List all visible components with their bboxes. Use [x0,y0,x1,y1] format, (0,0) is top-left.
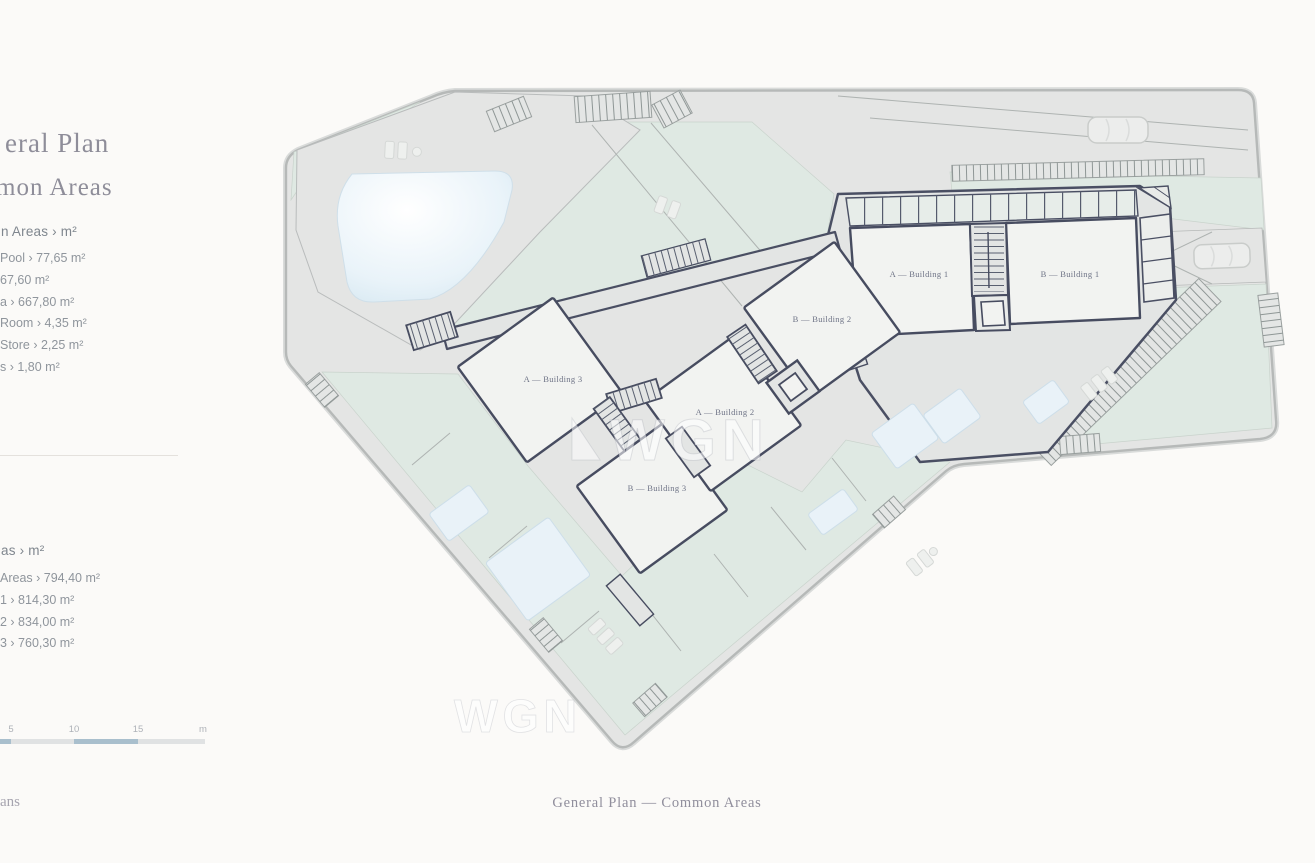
plot-areas-list: Areas › 794,40 m² 1 › 814,30 m² 2 › 834,… [0,568,100,655]
car-icon [1088,117,1148,143]
building-a3-label: A — Building 3 [524,374,583,384]
panel-subtitle-fragment: mon Areas [0,174,113,202]
panel-title-fragment: eral Plan [5,128,109,159]
building-b3-label: B — Building 3 [628,483,687,493]
panel-divider [0,455,178,456]
scale-tick: 10 [69,724,80,735]
building-b2-label: B — Building 2 [793,314,852,324]
common-areas-header: n Areas › m² [1,224,77,239]
list-item: 67,60 m² [0,270,87,292]
list-item: Store › 2,25 m² [0,335,87,357]
scale-bar: 5 10 15 m [0,724,210,748]
scale-bar-segments [0,739,205,744]
list-item: a › 667,80 m² [0,292,87,314]
list-item: s › 1,80 m² [0,357,87,379]
lounger-icon [906,543,942,577]
scale-tick: 15 [133,724,144,735]
info-panel: eral Plan mon Areas n Areas › m² Pool › … [0,0,236,863]
list-item: 1 › 814,30 m² [0,590,100,612]
building-a1-label: A — Building 1 [890,269,949,279]
list-item: 2 › 834,00 m² [0,612,100,634]
side-compartments [1140,214,1174,302]
watermark-text: WGN [454,690,582,742]
list-item: 3 › 760,30 m² [0,633,100,655]
list-item: Areas › 794,40 m² [0,568,100,590]
list-item: Pool › 77,65 m² [0,248,87,270]
common-areas-list: Pool › 77,65 m² 67,60 m² a › 667,80 m² R… [0,248,87,379]
stair-core [970,223,1010,331]
scale-tick: m [199,724,207,735]
footer-link-fragment: ans [0,794,20,811]
building-b1-label: B — Building 1 [1041,269,1100,279]
watermark-text: WGN [610,408,770,473]
plan-caption: General Plan — Common Areas [552,795,761,812]
plot-areas-header: as › m² [1,543,44,558]
scale-tick: 5 [8,724,13,735]
list-item: Room › 4,35 m² [0,313,87,335]
car-icon [1194,243,1251,269]
